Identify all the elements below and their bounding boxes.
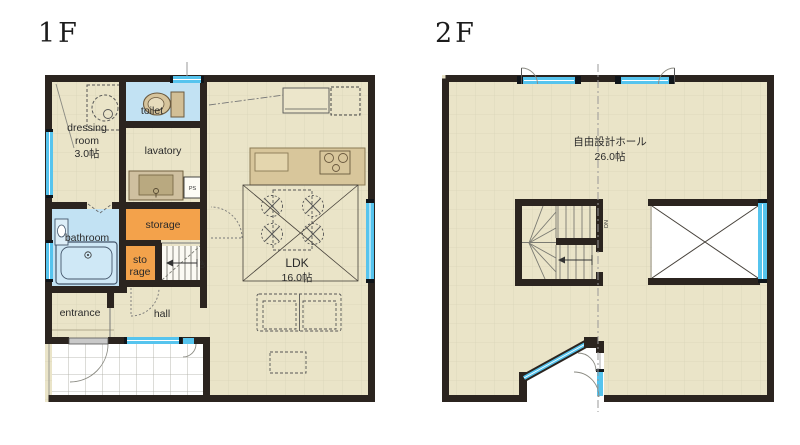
window-icon xyxy=(366,199,374,283)
room-label-ldk: LDK xyxy=(285,256,308,270)
window-icon xyxy=(183,338,194,344)
window-icon xyxy=(170,76,204,83)
floor1-title: 1F xyxy=(38,18,80,49)
sink-icon xyxy=(255,153,288,171)
window-icon xyxy=(46,129,53,198)
window-icon xyxy=(124,337,182,344)
bathtub-icon xyxy=(56,242,117,284)
room-label-lavatory: lavatory xyxy=(145,145,183,157)
stair-up-label: UP xyxy=(201,260,207,268)
vanity-icon xyxy=(129,171,183,200)
floor-plan-1f: 1F xyxy=(38,18,375,402)
room-label-storage2b: rage xyxy=(129,266,150,278)
room-label-dressing: dressing xyxy=(67,122,107,134)
window-icon xyxy=(46,240,53,282)
front-door-slab xyxy=(69,338,108,344)
room-label-storage: storage xyxy=(145,219,180,231)
room-size-free-hall: 26.0帖 xyxy=(595,150,626,163)
kitchen-counter xyxy=(250,148,365,185)
floor2-title: 2F xyxy=(435,18,477,49)
stair-down-label: DN xyxy=(604,220,610,228)
void-opening xyxy=(648,199,767,285)
room-size-dressing: 3.0帖 xyxy=(74,147,100,160)
room-label-free-hall: 自由設計ホール xyxy=(573,135,647,148)
room-label-hall: hall xyxy=(154,308,170,320)
room-label-ps: PS xyxy=(189,186,197,192)
floor-plan-page: 1F xyxy=(0,0,800,445)
room-label-entrance: entrance xyxy=(60,307,101,319)
window-icon xyxy=(758,199,767,283)
room-label-toilet: toilet xyxy=(141,105,163,117)
room-label-dressing2: room xyxy=(75,135,99,147)
room-label-storage2a: sto xyxy=(133,254,147,266)
floor-plan-2f: 2F xyxy=(435,18,774,412)
room-label-bathroom: bathroom xyxy=(65,232,110,244)
room-size-ldk: 16.0帖 xyxy=(282,271,313,284)
